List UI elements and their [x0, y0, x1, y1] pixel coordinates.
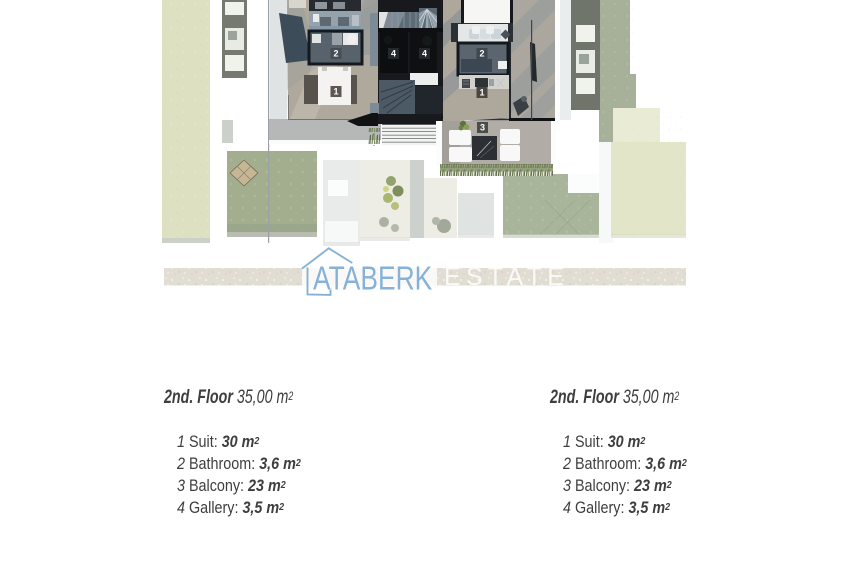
svg-text:1: 1: [479, 88, 484, 98]
svg-text:2: 2: [479, 49, 484, 59]
svg-text:4: 4: [391, 49, 396, 59]
svg-text:2: 2: [333, 49, 338, 59]
svg-text:1: 1: [333, 87, 338, 97]
svg-text:4: 4: [422, 49, 427, 59]
svg-text:ESTATE: ESTATE: [444, 263, 569, 291]
svg-text:3: 3: [480, 123, 485, 133]
svg-text:ATABERK: ATABERK: [313, 261, 432, 297]
